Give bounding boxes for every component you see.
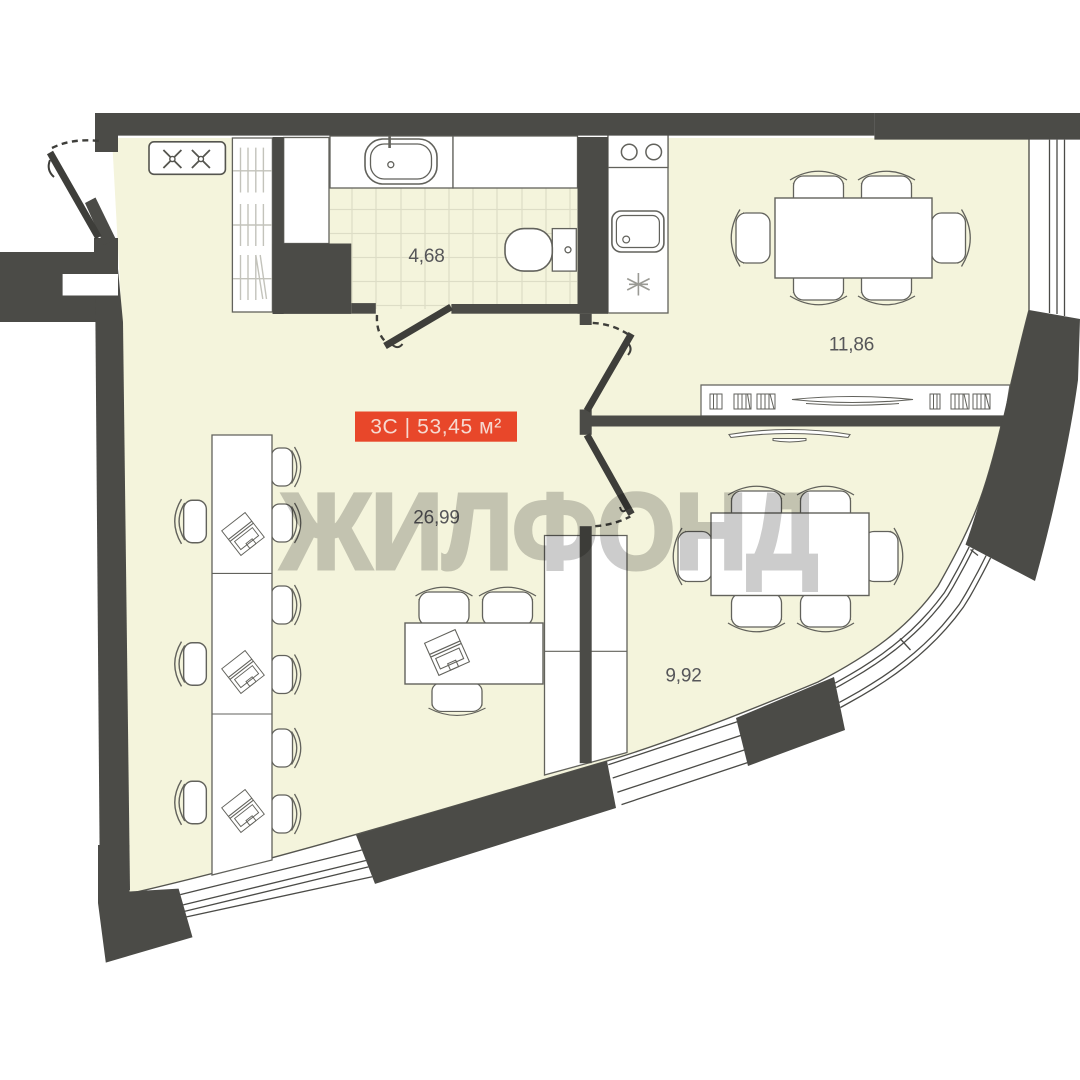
svg-text:11,86: 11,86 <box>829 335 874 356</box>
svg-text:ЖИЛФОНД: ЖИЛФОНД <box>280 471 818 592</box>
svg-text:9,92: 9,92 <box>665 666 701 687</box>
svg-text:4,68: 4,68 <box>408 246 444 267</box>
svg-text:3С | 53,45 м²: 3С | 53,45 м² <box>370 416 502 439</box>
